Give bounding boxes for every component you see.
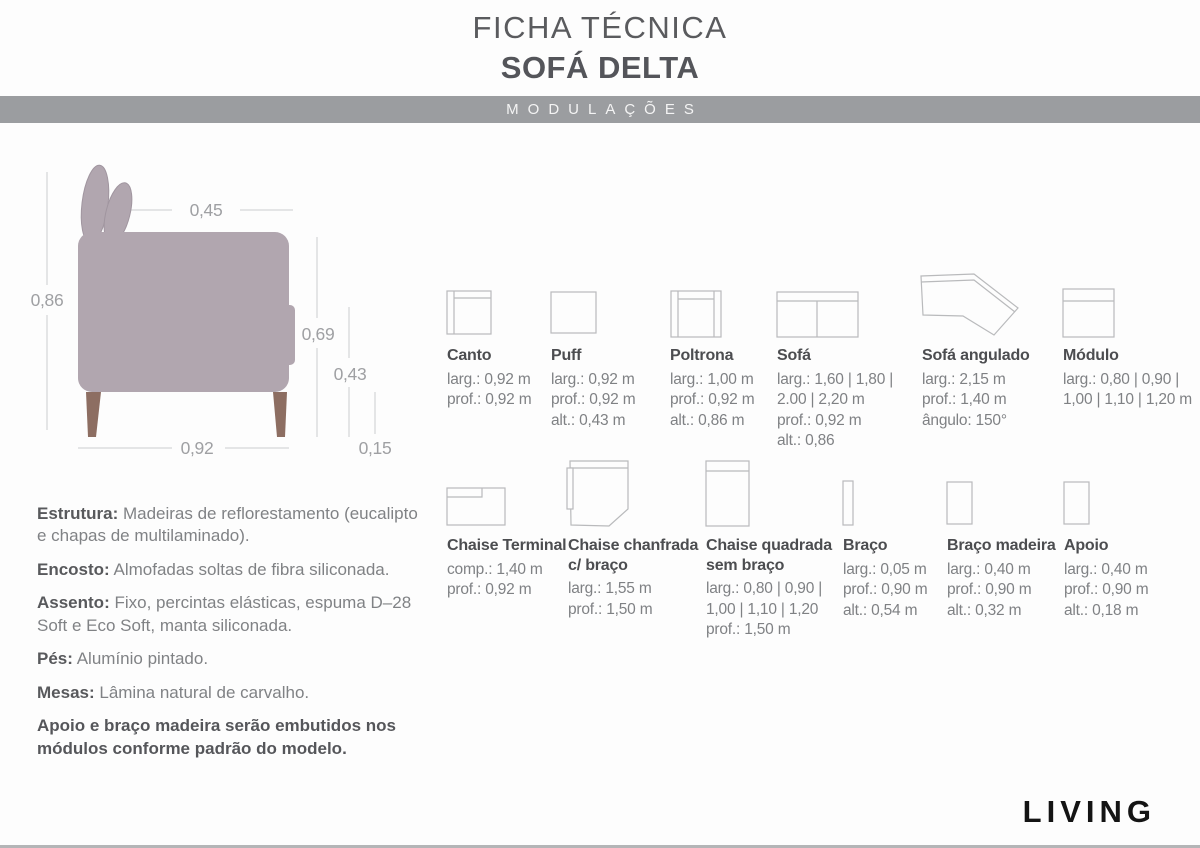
- module-spec: prof.: 0,92 m: [447, 580, 565, 601]
- module-spec: prof.: 0,90 m: [1064, 580, 1176, 601]
- module-name: Poltrona: [670, 346, 775, 366]
- sofa-legs: [86, 392, 287, 437]
- sofa-angulado-icon: [921, 274, 1018, 335]
- braco-madeira-icon: [947, 482, 972, 524]
- module-name: Sofá: [777, 346, 909, 366]
- spec-value: Apoio e braço madeira serão embutidos no…: [37, 716, 396, 757]
- spec-mesas: Mesas: Lâmina natural de carvalho.: [37, 682, 419, 704]
- sofa-armrest-tab: [281, 305, 295, 365]
- module-spec: larg.: 0,05 m: [843, 560, 948, 581]
- module-spec: larg.: 1,60 | 1,80 |: [777, 370, 909, 391]
- module-name: Chaise Terminal: [447, 536, 565, 556]
- dim-top-width: 0,45: [190, 200, 223, 220]
- ficha-tecnica-page: FICHA TÉCNICA SOFÁ DELTA MODULAÇÕES: [0, 0, 1200, 848]
- module-name: Módulo: [1063, 346, 1195, 366]
- spec-label: Estrutura:: [37, 504, 118, 523]
- spec-value: Alumínio pintado.: [73, 649, 208, 668]
- module-sofa: Sofá larg.: 1,60 | 1,80 | 2.00 | 2,20 m …: [777, 346, 909, 452]
- module-spec: 1,00 | 1,10 | 1,20 m: [1063, 390, 1195, 411]
- module-spec: 1,00 | 1,10 | 1,20: [706, 600, 838, 621]
- apoio-icon: [1064, 482, 1089, 524]
- module-spec: alt.: 0,43 m: [551, 411, 651, 432]
- module-spec: alt.: 0,18 m: [1064, 601, 1176, 622]
- spec-estrutura: Estrutura: Madeiras de reflorestamento (…: [37, 503, 419, 548]
- module-spec: larg.: 1,55 m: [568, 579, 700, 600]
- module-spec: prof.: 1,40 m: [922, 390, 1054, 411]
- module-spec: 2.00 | 2,20 m: [777, 390, 909, 411]
- module-name: Chaise chanfrada c/ braço: [568, 536, 700, 575]
- module-spec: larg.: 0,92 m: [551, 370, 651, 391]
- dim-leg-height: 0,15: [359, 438, 392, 458]
- canto-icon: [447, 291, 491, 334]
- module-canto: Canto larg.: 0,92 m prof.: 0,92 m: [447, 346, 547, 411]
- modulo-icon: [1063, 289, 1114, 337]
- module-sofa-angulado: Sofá angulado larg.: 2,15 m prof.: 1,40 …: [922, 346, 1054, 431]
- spec-value: Almofadas soltas de fibra siliconada.: [110, 560, 390, 579]
- module-spec: alt.: 0,32 m: [947, 601, 1059, 622]
- chaise-terminal-icon: [447, 488, 505, 525]
- module-chaise-terminal: Chaise Terminal comp.: 1,40 m prof.: 0,9…: [447, 536, 565, 601]
- module-spec: larg.: 0,40 m: [947, 560, 1059, 581]
- spec-label: Assento:: [37, 593, 110, 612]
- sofa-body: [78, 232, 289, 392]
- module-name: Chaise quadrada sem braço: [706, 536, 838, 575]
- spec-encosto: Encosto: Almofadas soltas de fibra silic…: [37, 559, 419, 581]
- spec-label: Encosto:: [37, 560, 110, 579]
- dim-total-height: 0,86: [31, 290, 64, 310]
- braco-icon: [843, 481, 853, 525]
- spec-note: Apoio e braço madeira serão embutidos no…: [37, 715, 419, 760]
- spec-value: Lâmina natural de carvalho.: [95, 683, 310, 702]
- module-braco-madeira: Braço madeira larg.: 0,40 m prof.: 0,90 …: [947, 536, 1059, 621]
- module-name: Braço madeira: [947, 536, 1059, 556]
- module-name: Canto: [447, 346, 547, 366]
- module-spec: larg.: 0,40 m: [1064, 560, 1176, 581]
- module-name: Apoio: [1064, 536, 1176, 556]
- module-spec: larg.: 1,00 m: [670, 370, 775, 391]
- module-spec: comp.: 1,40 m: [447, 560, 565, 581]
- module-spec: larg.: 0,80 | 0,90 |: [1063, 370, 1195, 391]
- module-apoio: Apoio larg.: 0,40 m prof.: 0,90 m alt.: …: [1064, 536, 1176, 621]
- module-spec: larg.: 0,80 | 0,90 |: [706, 579, 838, 600]
- spec-label: Mesas:: [37, 683, 95, 702]
- module-spec: prof.: 1,50 m: [568, 600, 700, 621]
- dim-back-height: 0,69: [302, 324, 335, 344]
- module-spec: prof.: 1,50 m: [706, 620, 838, 641]
- dim-seat-height: 0,43: [334, 364, 367, 384]
- module-puff: Puff larg.: 0,92 m prof.: 0,92 m alt.: 0…: [551, 346, 651, 431]
- module-spec: prof.: 0,92 m: [447, 390, 547, 411]
- module-spec: prof.: 0,90 m: [947, 580, 1059, 601]
- brand-logo: LIVING: [1023, 794, 1156, 830]
- spec-label: Pés:: [37, 649, 73, 668]
- spec-pes: Pés: Alumínio pintado.: [37, 648, 419, 670]
- module-spec: prof.: 0,92 m: [670, 390, 775, 411]
- chaise-chanfrada-icon: [567, 461, 628, 526]
- module-spec: larg.: 0,92 m: [447, 370, 547, 391]
- module-spec: alt.: 0,54 m: [843, 601, 948, 622]
- module-chaise-quadrada: Chaise quadrada sem braço larg.: 0,80 | …: [706, 536, 838, 641]
- poltrona-icon: [671, 291, 721, 337]
- module-spec: ângulo: 150°: [922, 411, 1054, 432]
- module-modulo: Módulo larg.: 0,80 | 0,90 | 1,00 | 1,10 …: [1063, 346, 1195, 411]
- spec-assento: Assento: Fixo, percintas elásticas, espu…: [37, 592, 419, 637]
- dim-total-depth: 0,92: [181, 438, 214, 458]
- sofa-side-view-diagram: 0,45 0,86 0,69 0,43 0,92 0,15: [31, 164, 392, 458]
- puff-icon: [551, 292, 596, 333]
- chaise-quadrada-icon: [706, 461, 749, 526]
- module-chaise-chanfrada: Chaise chanfrada c/ braço larg.: 1,55 m …: [568, 536, 700, 620]
- module-spec: prof.: 0,92 m: [777, 411, 909, 432]
- module-poltrona: Poltrona larg.: 1,00 m prof.: 0,92 m alt…: [670, 346, 775, 431]
- module-spec: alt.: 0,86 m: [670, 411, 775, 432]
- module-spec: larg.: 2,15 m: [922, 370, 1054, 391]
- module-spec: alt.: 0,86: [777, 431, 909, 452]
- module-name: Puff: [551, 346, 651, 366]
- sofa-icon: [777, 292, 858, 337]
- module-braco: Braço larg.: 0,05 m prof.: 0,90 m alt.: …: [843, 536, 948, 621]
- module-spec: prof.: 0,90 m: [843, 580, 948, 601]
- module-name: Braço: [843, 536, 948, 556]
- construction-specs: Estrutura: Madeiras de reflorestamento (…: [37, 503, 419, 771]
- module-spec: prof.: 0,92 m: [551, 390, 651, 411]
- module-name: Sofá angulado: [922, 346, 1054, 366]
